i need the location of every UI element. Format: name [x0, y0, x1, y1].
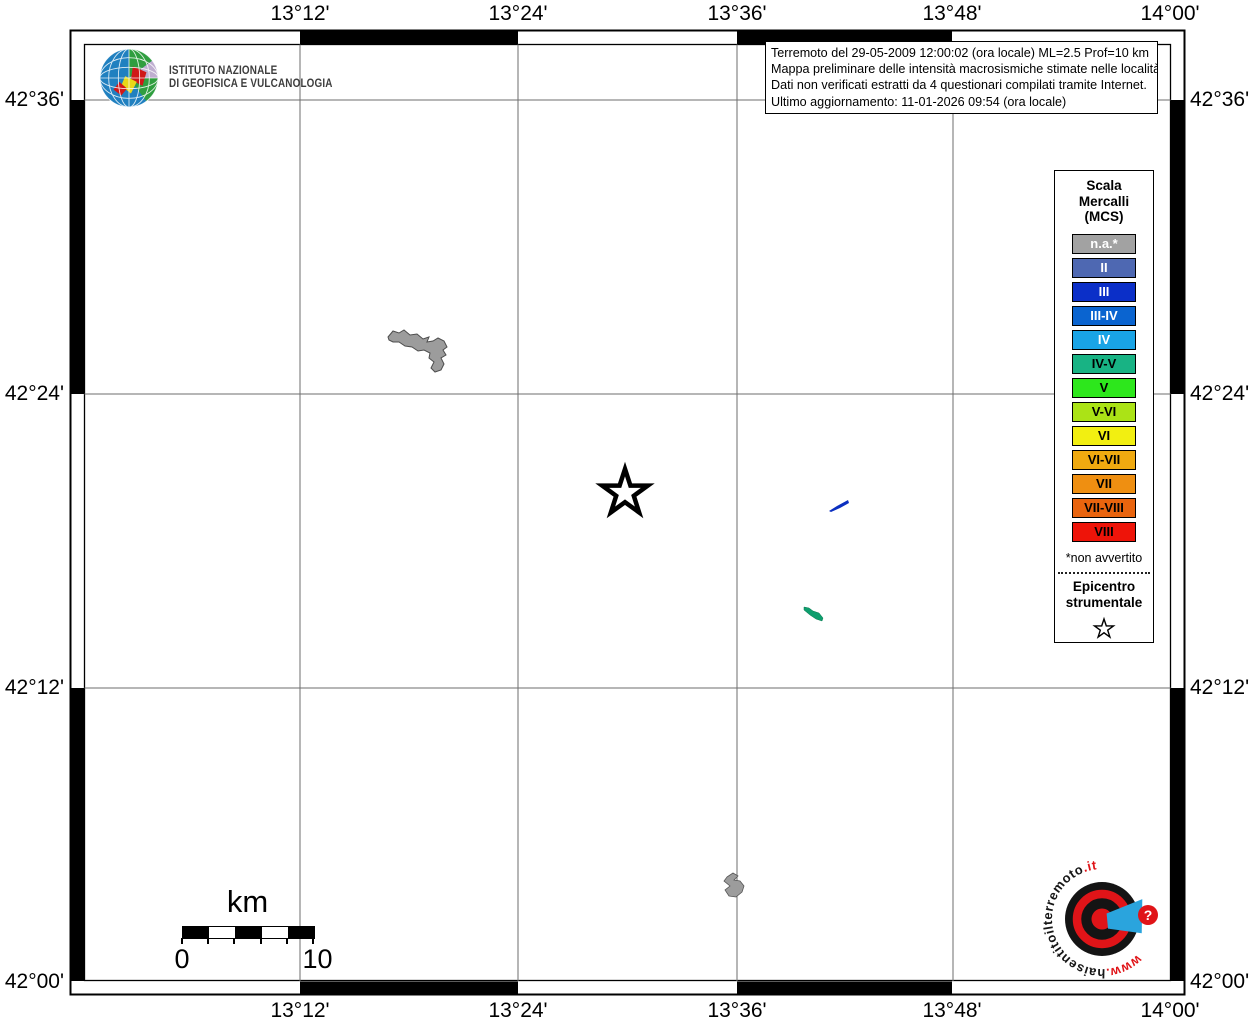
legend-swatch-viii: VIII: [1072, 522, 1136, 542]
legend-items: n.a.* II III III-IV IV IV-V V V-VI VI VI…: [1072, 232, 1136, 544]
legend-swatch-na: n.a.*: [1072, 234, 1136, 254]
epicenter-star-icon: [1091, 616, 1117, 642]
legend-swatch-iii: III: [1072, 282, 1136, 302]
legend-epicenter-label: Epicentro strumentale: [1066, 579, 1143, 612]
lon-label-bottom: 13°36': [707, 999, 766, 1023]
legend-swatch-iii-iv: III-IV: [1072, 306, 1136, 326]
legend-title: Scala Mercalli (MCS): [1079, 178, 1129, 225]
info-line-map: Mappa preliminare delle intensità macros…: [771, 61, 1152, 77]
frame-outer: [71, 31, 1185, 995]
scale-bar-start: 0: [174, 944, 189, 975]
info-line-event: Terremoto del 29-05-2009 12:00:02 (ora l…: [771, 45, 1152, 61]
lat-label-right: 42°24': [1190, 382, 1249, 406]
legend-swatch-vi: VI: [1072, 426, 1136, 446]
locality-marker-intensity-iv-v: [804, 607, 823, 621]
lon-label-top: 13°48': [922, 2, 981, 26]
graticule-grid: [85, 45, 1171, 982]
legend-swatch-v-vi: V-VI: [1072, 402, 1136, 422]
legend-footnote: *non avvertito: [1066, 551, 1142, 565]
lake-feature: [388, 330, 447, 372]
lon-label-top: 13°12': [270, 2, 329, 26]
lon-label-bottom: 13°12': [270, 999, 329, 1023]
lat-label-left: 42°24': [0, 382, 64, 406]
lon-label-top: 14°00': [1140, 2, 1199, 26]
ingv-logo[interactable]: ISTITUTO NAZIONALE DI GEOFISICA E VULCAN…: [98, 47, 359, 109]
frame-band-segments: [72, 32, 1184, 995]
legend-swatch-vii: VII: [1072, 474, 1136, 494]
legend-swatch-v: V: [1072, 378, 1136, 398]
lat-label-left: 42°12': [0, 676, 64, 700]
town-patch-feature: [724, 873, 744, 897]
question-mark: ?: [1144, 907, 1153, 923]
lat-label-right: 42°36': [1190, 88, 1249, 112]
lon-label-top: 13°24': [488, 2, 547, 26]
scale-bar-segments: [182, 926, 315, 939]
frame-inner: [85, 45, 1171, 981]
lon-label-bottom: 13°24': [488, 999, 547, 1023]
legend-swatch-iv-v: IV-V: [1072, 354, 1136, 374]
lon-label-bottom: 14°00': [1140, 999, 1199, 1023]
legend-divider: [1058, 572, 1150, 574]
ingv-globe-icon: [98, 47, 160, 109]
lat-label-right: 42°00': [1190, 970, 1249, 994]
info-line-data: Dati non verificati estratti da 4 questi…: [771, 77, 1152, 93]
lon-label-bottom: 13°48': [922, 999, 981, 1023]
legend-swatch-ii: II: [1072, 258, 1136, 278]
legend-swatch-vi-vii: VI-VII: [1072, 450, 1136, 470]
scale-bar-unit: km: [182, 884, 313, 920]
legend-swatch-iv: IV: [1072, 330, 1136, 350]
locality-marker-intensity-iii: [829, 500, 849, 512]
scale-bar-end: 10: [302, 944, 332, 975]
lon-label-top: 13°36': [707, 2, 766, 26]
mercalli-legend: Scala Mercalli (MCS) n.a.* II III III-IV…: [1054, 170, 1154, 643]
lat-label-left: 42°36': [0, 88, 64, 112]
macroseismic-map-page: 13°12' 13°24' 13°36' 13°48' 14°00' 13°12…: [0, 0, 1256, 1024]
ingv-logo-text: ISTITUTO NAZIONALE DI GEOFISICA E VULCAN…: [169, 65, 333, 92]
epicenter-star: [602, 469, 648, 512]
earthquake-info-box: Terremoto del 29-05-2009 12:00:02 (ora l…: [765, 41, 1158, 114]
haisentito-logo[interactable]: ? www.haisentitoilterremoto.it: [1036, 853, 1168, 985]
legend-swatch-vii-viii: VII-VIII: [1072, 498, 1136, 518]
lat-label-left: 42°00': [0, 970, 64, 994]
lat-label-right: 42°12': [1190, 676, 1249, 700]
info-line-updated: Ultimo aggiornamento: 11-01-2026 09:54 (…: [771, 94, 1152, 110]
